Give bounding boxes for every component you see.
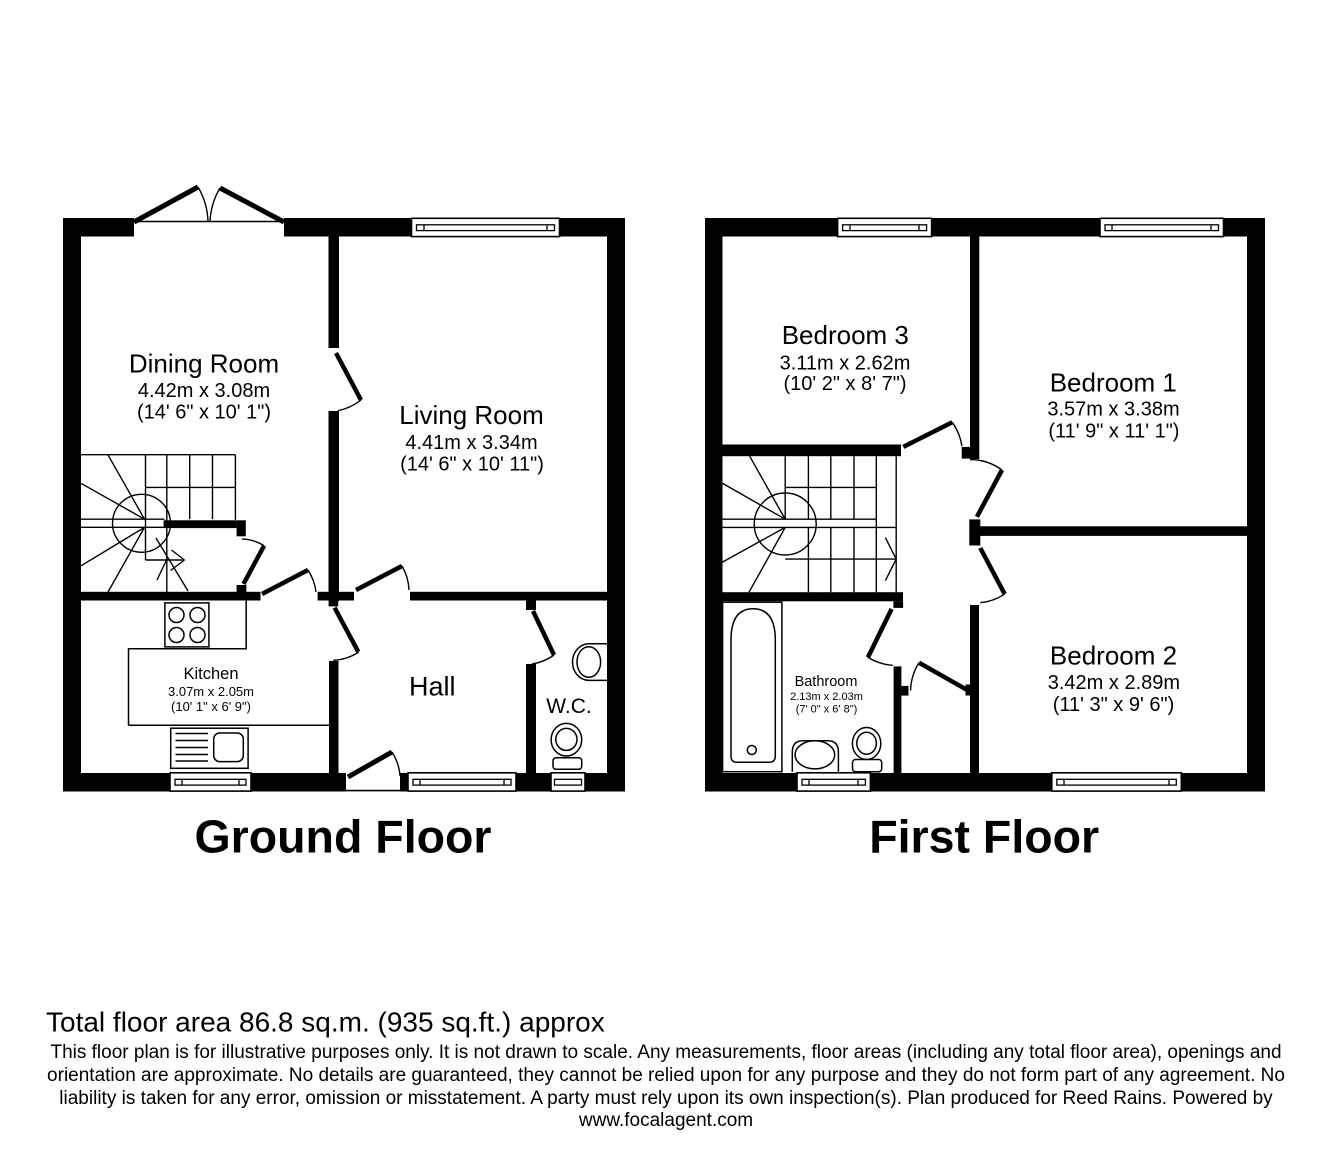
svg-text:(14' 6" x 10' 11"): (14' 6" x 10' 11") [400, 454, 544, 476]
svg-text:(10' 1" x 6' 9"): (10' 1" x 6' 9") [171, 699, 251, 714]
svg-text:Bedroom 1: Bedroom 1 [1050, 367, 1177, 397]
svg-text:Ground Floor: Ground Floor [194, 811, 491, 863]
svg-text:(10' 2" x 8' 7"): (10' 2" x 8' 7") [784, 373, 907, 395]
svg-text:liability is taken for any err: liability is taken for any error, omissi… [59, 1088, 1273, 1109]
svg-text:4.42m x 3.08m: 4.42m x 3.08m [138, 380, 270, 402]
svg-text:www.focalagent.com: www.focalagent.com [578, 1110, 753, 1131]
svg-text:(7' 0" x 6' 8"): (7' 0" x 6' 8") [796, 704, 858, 716]
svg-text:Total floor area 86.8 sq.m. (9: Total floor area 86.8 sq.m. (935 sq.ft.)… [46, 1006, 605, 1037]
svg-text:(14' 6" x 10' 1"): (14' 6" x 10' 1") [137, 401, 271, 423]
svg-text:4.41m x 3.34m: 4.41m x 3.34m [405, 432, 537, 454]
svg-text:3.57m x 3.38m: 3.57m x 3.38m [1047, 399, 1179, 421]
svg-text:Bedroom 3: Bedroom 3 [782, 320, 909, 350]
svg-text:3.07m x 2.05m: 3.07m x 2.05m [168, 684, 254, 699]
svg-text:orientation are approximate. N: orientation are approximate. No details … [47, 1065, 1285, 1086]
svg-text:First Floor: First Floor [869, 811, 1099, 863]
svg-text:Hall: Hall [409, 672, 456, 702]
svg-text:Kitchen: Kitchen [183, 665, 238, 683]
svg-text:W.C.: W.C. [546, 695, 592, 718]
svg-text:2.13m x 2.03m: 2.13m x 2.03m [790, 691, 863, 703]
svg-text:(11' 9" x 11' 1"): (11' 9" x 11' 1") [1048, 421, 1179, 443]
svg-text:3.11m x 2.62m: 3.11m x 2.62m [780, 353, 911, 375]
svg-text:Bedroom 2: Bedroom 2 [1050, 640, 1177, 670]
svg-text:This floor plan is for illustr: This floor plan is for illustrative purp… [50, 1042, 1281, 1063]
svg-text:Dining Room: Dining Room [129, 348, 279, 378]
svg-text:Bathroom: Bathroom [795, 674, 858, 690]
svg-text:3.42m x 2.89m: 3.42m x 2.89m [1048, 672, 1180, 694]
svg-text:(11' 3" x 9' 6"): (11' 3" x 9' 6") [1053, 694, 1175, 716]
svg-text:Living Room: Living Room [399, 400, 544, 430]
